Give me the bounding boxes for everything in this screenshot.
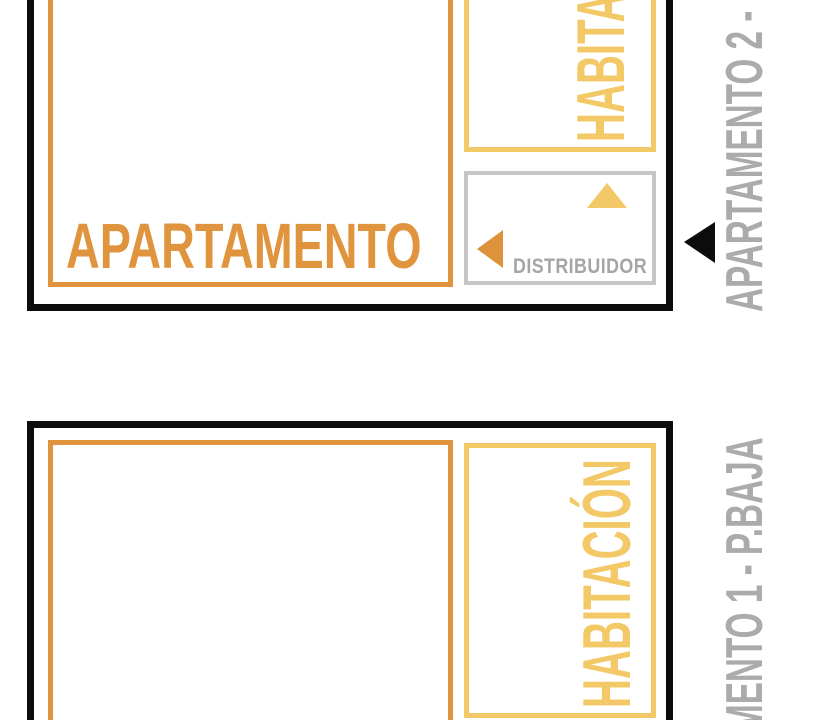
apartment2-pointer-icon <box>684 222 715 263</box>
apartment1-habitacion-label: HABITACIÓN <box>573 459 641 708</box>
distribuidor-label: DISTRIBUIDOR <box>513 256 647 277</box>
apartment2-side-label: APARTAMENTO 2 - <box>719 11 771 312</box>
apartamento-label: APARTAMENTO <box>66 214 422 278</box>
apartment2-habitacion-label: HABITACIÓN <box>567 0 635 142</box>
apartment1-main-room-outline <box>48 440 453 720</box>
distributor-arrow-up-icon <box>587 183 627 208</box>
apartment1-side-label: MENTO 1 - P.BAJA <box>719 437 771 720</box>
distributor-arrow-left-icon <box>477 230 503 268</box>
floor-plan-canvas: APARTAMENTO HABITACIÓN DISTRIBUIDOR APAR… <box>0 0 820 720</box>
